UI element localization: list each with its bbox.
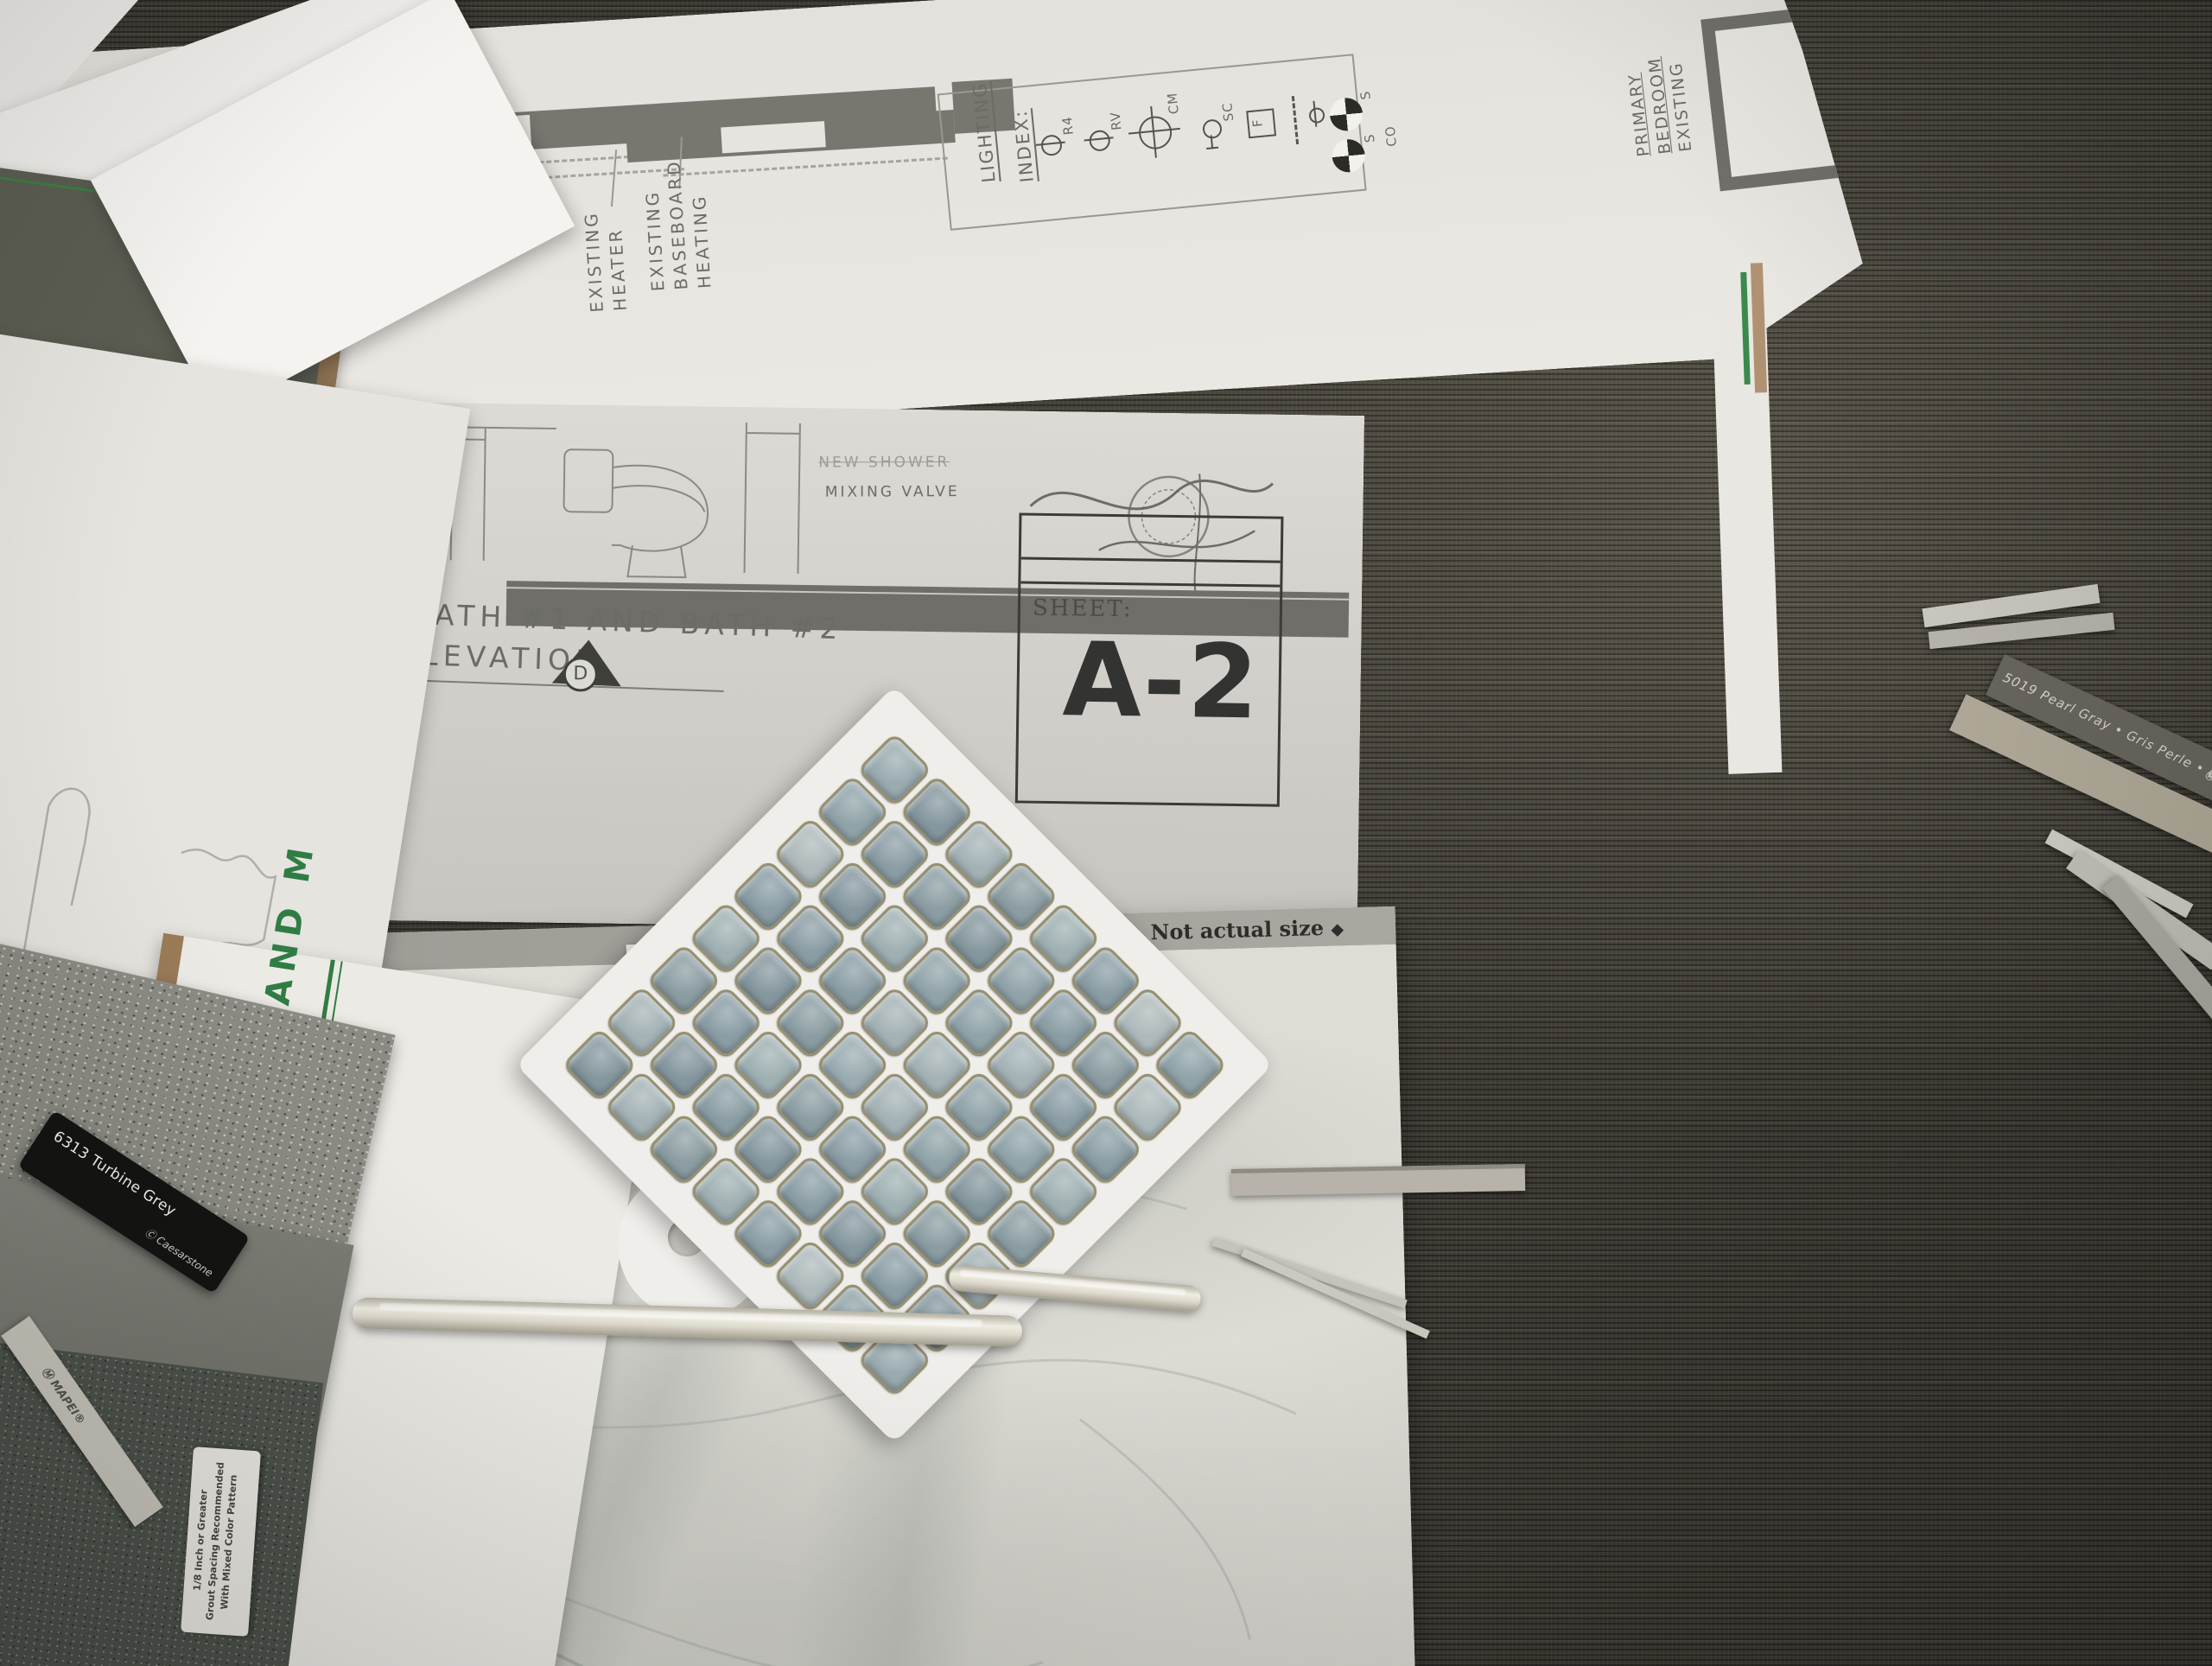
board-edge-sliver	[1711, 254, 1783, 774]
flat-trim-stick	[1231, 1164, 1525, 1196]
grout-spacing-label: 1/8 Inch or Greater Grout Spacing Recomm…	[181, 1447, 261, 1637]
heating-label-2: EXISTING BASEBOARD HEATING	[638, 141, 719, 292]
new-shower-note: NEW SHOWER	[818, 454, 950, 472]
bath-elevation-drawing	[433, 403, 842, 595]
symbol-recessed-rv: RV	[1089, 130, 1111, 152]
symbol-sconce-sc: SC	[1202, 118, 1223, 139]
sheet-label: SHEET:	[1033, 595, 1133, 623]
title-block-rule-2	[1020, 581, 1280, 587]
green-edge-line	[1740, 272, 1751, 385]
title-block: SHEET: A-2	[1015, 512, 1284, 806]
symbol-switch	[1308, 107, 1325, 124]
cardboard-edge-strip	[1751, 263, 1767, 392]
photo-scene: Any glazed tile surface should not be cl…	[0, 0, 2212, 1666]
title-block-rule-1	[1021, 556, 1281, 563]
not-actual-size-note: Not actual size ◆	[1150, 914, 1344, 944]
bedroom-walls	[1700, 3, 1866, 191]
symbol-recessed-r4: R4	[1040, 134, 1063, 156]
symbol-smoke-detector: S	[1328, 97, 1363, 132]
primary-bedroom-plan: PRIMARY BEDROOM EXISTING	[1619, 4, 1854, 209]
mixing-valve-note: MIXING VALVE	[825, 483, 960, 501]
symbol-ceiling-cm: CM	[1137, 115, 1173, 150]
diamond-icon: ◆	[1331, 919, 1344, 938]
symbol-fan-f: F	[1246, 108, 1276, 138]
bedroom-label: PRIMARY BEDROOM EXISTING	[1619, 20, 1711, 157]
legend-subtitle: INDEX:	[1007, 69, 1039, 183]
symbol-dashed-run	[1292, 96, 1299, 144]
symbol-smoke-co-detector: S CO	[1331, 138, 1366, 174]
sheet-number: A-2	[1062, 620, 1261, 741]
plan-wall-fragment	[1853, 126, 1914, 283]
